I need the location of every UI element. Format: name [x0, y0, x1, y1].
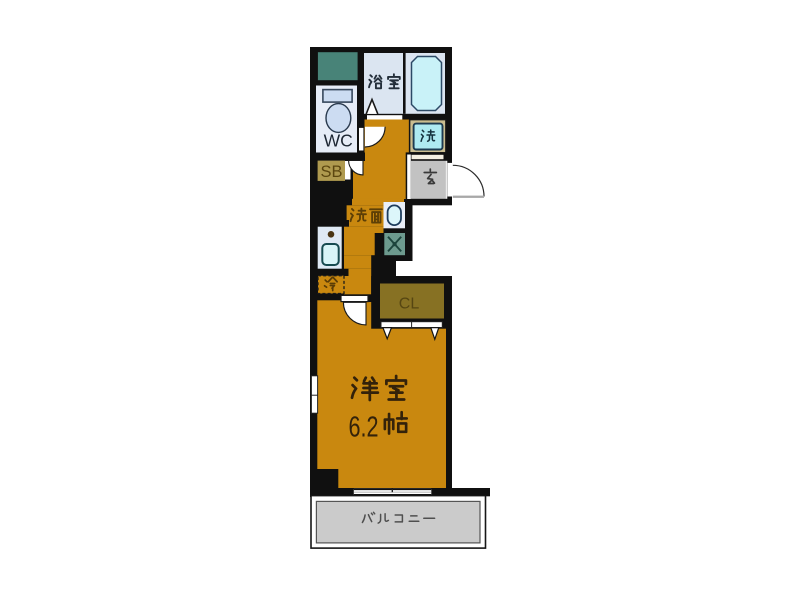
svg-text:SB: SB — [320, 163, 342, 181]
svg-text:6.2: 6.2 — [349, 412, 379, 444]
svg-text:CL: CL — [399, 296, 420, 313]
svg-text:WC: WC — [324, 131, 353, 151]
